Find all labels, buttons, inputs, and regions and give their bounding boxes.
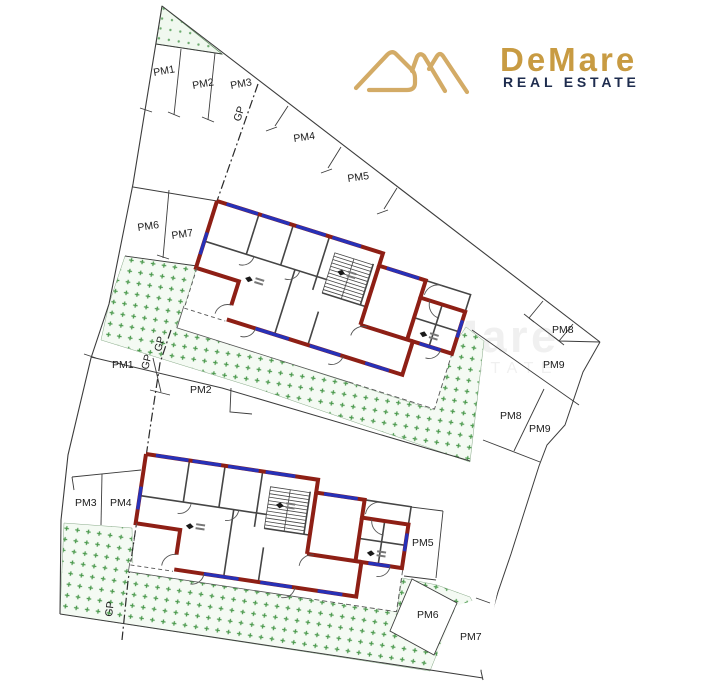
svg-text:PM8: PM8: [552, 324, 574, 336]
svg-text:PM9: PM9: [529, 423, 551, 435]
svg-text:PM9: PM9: [543, 359, 565, 371]
svg-text:PM2: PM2: [190, 384, 212, 396]
svg-text:PM6: PM6: [417, 609, 439, 621]
svg-text:REAL ESTATE: REAL ESTATE: [503, 74, 640, 90]
svg-text:PM7: PM7: [460, 631, 482, 643]
svg-text:PM4: PM4: [110, 497, 132, 509]
svg-text:DeMare: DeMare: [500, 41, 637, 78]
svg-text:PM1: PM1: [112, 359, 134, 371]
svg-text:PM5: PM5: [412, 537, 434, 549]
svg-text:GP: GP: [103, 601, 117, 618]
svg-text:PM8: PM8: [500, 410, 522, 422]
svg-text:PM3: PM3: [75, 497, 97, 509]
